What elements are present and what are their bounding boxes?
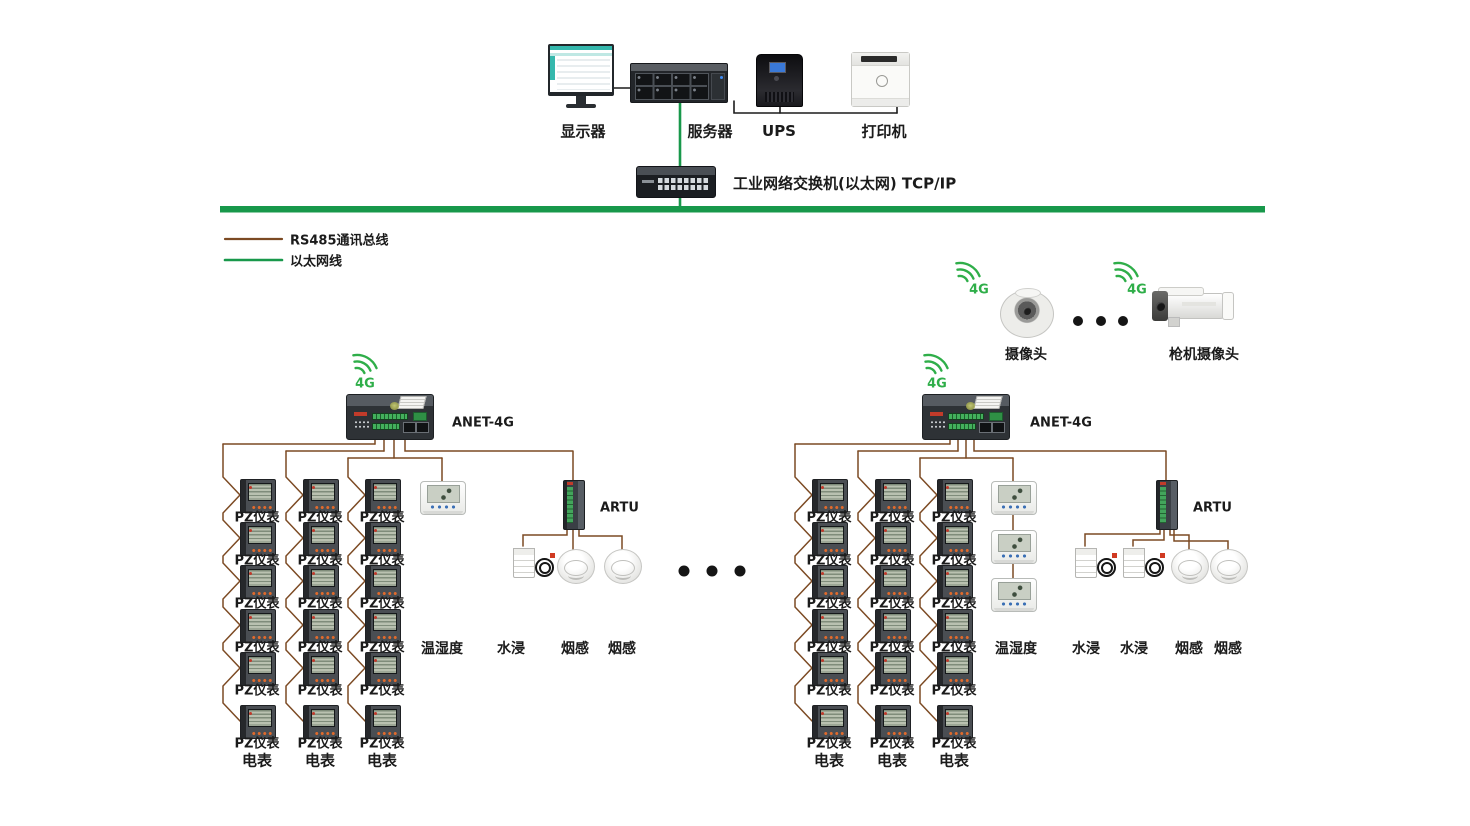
server-led [720,76,723,79]
ethernet-backbone-bar [220,206,1265,213]
meter-led [821,572,824,575]
ups-vents [765,92,794,102]
meter-column-label: 电表 [305,750,335,771]
temp-humidity-base [994,511,1034,514]
monitor-screen-content [557,59,610,90]
meter-led [946,486,949,489]
meter-led [821,529,824,532]
printer-device [851,52,910,107]
temp-humidity-base [423,511,463,514]
meter-led [374,616,377,619]
pz-meter-label: PZ仪表 [235,680,280,699]
meter-led [374,572,377,575]
meter-led [821,616,824,619]
meter-led [821,486,824,489]
monitor-base [566,104,596,108]
gateway-brand-mark [354,412,367,416]
wifi-4g-label: 4G [1127,283,1147,298]
meter-led [374,486,377,489]
wifi-4g-label: 4G [969,283,989,298]
meter-led [249,616,252,619]
monitor-screen-titlebar [550,46,612,50]
gateway-sticker [973,396,1002,409]
meter-led [821,659,824,662]
meter-led [374,529,377,532]
water-sensor-module-top [1075,548,1097,555]
temp-humidity-buttons [1000,505,1028,509]
wire [1085,528,1160,546]
wire [356,368,365,373]
wifi-4g-label: 4G [355,377,375,392]
network-topology-diagram: 显示器 服务器 UPS 打印机 工业网络交换机(以太网) TCP/IP RS48… [0,0,1470,826]
temp-humidity-screen [998,534,1031,552]
artu-label: ARTU [1193,501,1232,516]
water-sensor-module-top [1123,548,1145,555]
pz-meter-label: PZ仪表 [807,680,852,699]
water-sensor-device [513,546,555,580]
monitor-stand [576,96,586,104]
meter-led [312,572,315,575]
meter-led [946,529,949,532]
server-device [630,63,728,103]
temp-humidity-sensor-device [991,530,1037,564]
gateway-ethernet-port [992,422,1005,433]
ups-device [756,54,803,107]
ellipsis-dot [1096,316,1106,326]
meter-column-label: 电表 [367,750,397,771]
anet-4g-gateway-device [922,394,1010,440]
smoke-detector-label: 烟感 [608,638,636,658]
bullet-camera-lens [1156,302,1165,311]
gateway-indicators [930,420,945,430]
gateway-sticker [397,396,426,409]
legend-rs485-label: RS485通讯总线 [290,230,389,249]
wire [579,528,622,549]
wiring-layer [0,0,1470,826]
temp-humidity-sensor-device [420,481,466,515]
temp-humidity-screen [998,485,1031,503]
ellipsis-dot [1073,316,1083,326]
meter-led [312,486,315,489]
bullet-camera-endcap [1222,292,1234,320]
pz-meter-label: PZ仪表 [298,680,343,699]
water-sensor-cable [1097,558,1116,577]
meter-led [884,659,887,662]
smoke-detector-device [1171,549,1209,584]
wire [523,528,567,546]
wire [1174,528,1228,550]
gateway-antenna-badge [966,402,975,410]
meter-led [884,529,887,532]
meter-led [374,712,377,715]
monitor-screen-toolbar [550,53,612,56]
pz-meter-label: PZ仪表 [360,680,405,699]
temp-humidity-sensor-device [991,578,1037,612]
water-sensor-label: 水浸 [1072,638,1100,658]
dome-camera-cap [1015,288,1041,298]
water-sensor-label: 水浸 [1120,638,1148,658]
meter-led [312,616,315,619]
artu-module-device [563,480,585,530]
smoke-detector-device [1210,549,1248,584]
ups-label: UPS [762,122,796,140]
meter-led [249,659,252,662]
gateway-antenna-badge [390,402,399,410]
water-sensor-probe [1160,553,1165,558]
gateway-terminal-block [413,412,427,421]
temp-humidity-label: 温湿度 [995,638,1037,658]
water-sensor-device [1123,546,1165,580]
printer-paper-slot [861,56,897,62]
temp-humidity-sensor-device [991,481,1037,515]
temp-humidity-screen [427,485,460,503]
meter-led [312,529,315,532]
meter-column-label: 电表 [877,750,907,771]
gateway-ethernet-port [979,422,992,433]
meter-led [249,572,252,575]
ups-button [774,76,779,81]
switch-brand-mark [642,180,654,183]
wire [959,276,968,281]
wire [1170,528,1189,550]
gateway-label: ANET-4G [1030,416,1092,431]
anet-4g-gateway-device [346,394,434,440]
meter-led [946,712,949,715]
gateway-brand-mark [930,412,943,416]
server-label: 服务器 [687,121,732,142]
ethernet-switch-device [636,166,716,198]
temp-humidity-base [994,560,1034,563]
wifi-4g-label: 4G [927,377,947,392]
artu-module-device [1156,480,1178,530]
switch-ports-row2 [658,185,710,190]
bullet-camera-device [1152,284,1234,330]
gateway-terminal-strip [372,413,408,420]
artu-brand-mark [1160,482,1166,485]
meter-led [884,486,887,489]
water-sensor-module-top [513,548,535,555]
ellipsis-dot [707,566,718,577]
monitor-screen [550,46,612,92]
meter-led [821,712,824,715]
gateway-indicators [354,420,369,430]
temp-humidity-label: 温湿度 [421,638,463,658]
dome-camera-lens [1023,307,1031,315]
meter-led [884,616,887,619]
dome-camera-label: 摄像头 [1005,344,1047,364]
smoke-detector-label: 烟感 [1175,638,1203,658]
gateway-ethernet-port [403,422,416,433]
server-bay-divider [635,85,707,87]
water-sensor-cable [1145,558,1164,577]
meter-column-label: 电表 [242,750,272,771]
monitor-label: 显示器 [560,121,605,142]
gateway-terminal-strip [948,423,976,430]
bullet-camera-label: 枪机摄像头 [1169,344,1239,364]
gateway-ethernet-port [416,422,429,433]
smoke-detector-label: 烟感 [561,638,589,658]
meter-led [249,712,252,715]
printer-logo [876,75,888,87]
meter-led [249,529,252,532]
bullet-camera-mount [1168,317,1180,327]
meter-led [946,659,949,662]
temp-humidity-base [994,608,1034,611]
meter-led [884,572,887,575]
wire [1117,276,1126,281]
meter-led [312,712,315,715]
ups-screen [769,62,786,73]
ellipsis-dot [679,566,690,577]
gateway-terminal-strip [948,413,984,420]
artu-brand-mark [567,482,573,485]
smoke-detector-device [604,549,642,584]
meter-column-label: 电表 [939,750,969,771]
meter-led [312,659,315,662]
legend-ethernet-label: 以太网线 [290,251,342,270]
temp-humidity-buttons [1000,554,1028,558]
ellipsis-dot [1118,316,1128,326]
dome-camera-device [1000,290,1054,338]
bullet-camera-stripe [1182,302,1216,306]
meter-column-label: 电表 [814,750,844,771]
artu-terminal-strip [1160,487,1166,523]
gateway-terminal-block [989,412,1003,421]
artu-label: ARTU [600,501,639,516]
meter-led [374,659,377,662]
temp-humidity-buttons [1000,602,1028,606]
water-sensor-label: 水浸 [497,638,525,658]
water-sensor-device [1075,546,1117,580]
temp-humidity-screen [998,582,1031,600]
pz-meter-label: PZ仪表 [932,680,977,699]
smoke-detector-label: 烟感 [1214,638,1242,658]
printer-base [852,98,909,106]
meter-led [884,712,887,715]
temp-humidity-buttons [429,505,457,509]
artu-terminal-strip [567,487,573,523]
switch-label: 工业网络交换机(以太网) TCP/IP [733,173,956,194]
printer-label: 打印机 [861,121,906,142]
water-sensor-probe [1112,553,1117,558]
bullet-camera-body [1164,293,1228,319]
server-drive-bays [635,73,709,100]
monitor-screen-sidebar [550,56,555,80]
meter-led [946,616,949,619]
gateway-terminal-strip [372,423,400,430]
switch-ports-row1 [658,178,710,183]
pz-meter-label: PZ仪表 [870,680,915,699]
water-sensor-cable [535,558,554,577]
monitor-device [548,44,614,108]
wire [927,368,936,373]
meter-led [249,486,252,489]
smoke-detector-device [557,549,595,584]
water-sensor-probe [550,553,555,558]
ellipsis-dot [735,566,746,577]
monitor-frame [548,44,614,96]
meter-led [946,572,949,575]
gateway-label: ANET-4G [452,416,514,431]
